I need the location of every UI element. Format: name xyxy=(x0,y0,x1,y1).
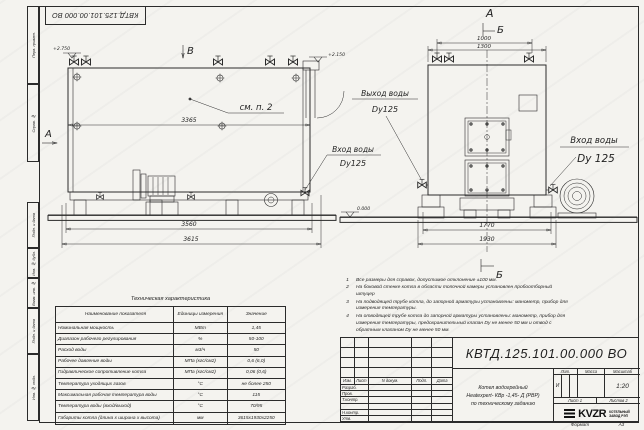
table-row: Номинальная мощностьМВт1,45 xyxy=(56,323,285,334)
note-item: 2На боковой стенке котла в области топоч… xyxy=(344,285,570,299)
section-marker-a: А xyxy=(485,7,494,20)
upper-door xyxy=(465,118,511,156)
dim-1770: 1770 xyxy=(479,222,494,229)
scale-value: 1:20 xyxy=(605,375,640,397)
inlet-valve-front xyxy=(549,184,558,193)
ground-hatch-left xyxy=(48,215,336,220)
label-inlet-side-dn: Dy125 xyxy=(340,159,366,168)
table-row: Максимальная рабочая температура воды°С1… xyxy=(56,390,285,401)
dim-3365: 3365 xyxy=(181,117,196,124)
elevation-2150: +2.150 xyxy=(328,52,345,58)
label-inlet-side: Вход воды xyxy=(332,145,374,154)
notes-list: 1Все размеры для справок, допустимое отк… xyxy=(344,278,570,335)
table-row: Рабочее давление водыМПа (кгс/см2)0,6 (6… xyxy=(56,357,285,368)
label-outlet-dn: Dy125 xyxy=(372,105,398,114)
view-marker-a-side: А xyxy=(44,129,52,140)
note-item: 1Все размеры для справок, допустимое отк… xyxy=(344,278,570,285)
callout-see-note-2: см. п. 2 xyxy=(240,103,273,113)
dim-1300: 1300 xyxy=(477,44,491,50)
table-row: Расход водым3/ч50 xyxy=(56,345,285,356)
drawing-sheet: КВТД.125.101.00.000 ВО Перв. примен. Спр… xyxy=(0,0,644,430)
doc-title: Котел водогрейный Heatexpert- КВр -1,45-… xyxy=(453,369,554,423)
fan-blower xyxy=(558,179,596,218)
sheets-total: Листов 2 xyxy=(597,398,640,403)
lifting-lug-icon xyxy=(73,73,82,82)
boiler-body-side xyxy=(68,68,310,192)
tech-table: Наименование показателя Единицы измерени… xyxy=(55,306,286,425)
kvzr-logo-icon xyxy=(564,409,575,418)
elevation-0000: 0.000 xyxy=(357,206,370,212)
label-inlet-front-dn: Dy 125 xyxy=(577,153,615,165)
note-item: 3На подводящей трубе котла, до запорной … xyxy=(344,300,570,314)
title-block-revision-grid: Изм. Лист N докум. Подп. Дата Разраб. Пр… xyxy=(341,338,453,421)
dim-3560: 3560 xyxy=(181,221,196,228)
section-marker-b-top: Б xyxy=(497,25,504,36)
lit-mass-scale-block: Лит. Масса Масштаб И 1:20 Лист 1 Листов … xyxy=(554,369,640,423)
side-view xyxy=(48,56,344,220)
dim-3615: 3615 xyxy=(183,236,198,243)
table-row: Температура воды (вход/выход)°С70/95 xyxy=(56,401,285,412)
side-view-dimensions: 3365 3560 3615 +2.750 В см. п. 2 А Вход … xyxy=(42,45,381,248)
front-view-dimensions: 1000 1300 А Б 1770 1930 Б Выход воды Dy1… xyxy=(352,7,629,281)
table-row: Гидравлическое сопротивление котлаМПа (к… xyxy=(56,368,285,379)
table-row: Диапазон рабочего регулирования%50-100 xyxy=(56,334,285,345)
inlet-valve-side xyxy=(301,188,309,196)
flue-duct xyxy=(303,61,344,118)
lit-value: И xyxy=(554,375,562,397)
table-row: Габариты котла (длина х ширина х высота)… xyxy=(56,413,285,424)
outlet-valve-front xyxy=(418,179,427,188)
label-outlet: Выход воды xyxy=(361,89,409,98)
doc-number: КВТД.125.101.00.000 ВО xyxy=(453,338,640,369)
kvzr-logo: KVZR КОТЕЛЬНЫЙ ЗАВОД РЭП xyxy=(554,404,640,423)
dim-1000: 1000 xyxy=(477,36,491,42)
safety-valve xyxy=(70,56,79,65)
view-marker-v: В xyxy=(187,46,194,57)
title-block: Изм. Лист N докум. Подп. Дата Разраб. Пр… xyxy=(340,337,639,422)
format-label: Формат А3 xyxy=(556,422,639,427)
note-item: 4На отводящей трубе котла до запорной ар… xyxy=(344,314,570,335)
table-row: Температура уходящих газов°Сне более 250 xyxy=(56,379,285,390)
dim-1930: 1930 xyxy=(479,236,494,243)
inspection-hatch xyxy=(519,95,537,111)
label-inlet-front: Вход воды xyxy=(570,136,618,146)
tech-table-title: Техническая характеристика xyxy=(55,296,286,302)
elevation-2750: +2.750 xyxy=(53,46,70,52)
revision-header-row: Изм. Лист N докум. Подп. Дата xyxy=(341,378,452,385)
sheet-number: Лист 1 xyxy=(554,398,597,403)
tech-table-header: Наименование показателя Единицы измерени… xyxy=(56,307,285,323)
